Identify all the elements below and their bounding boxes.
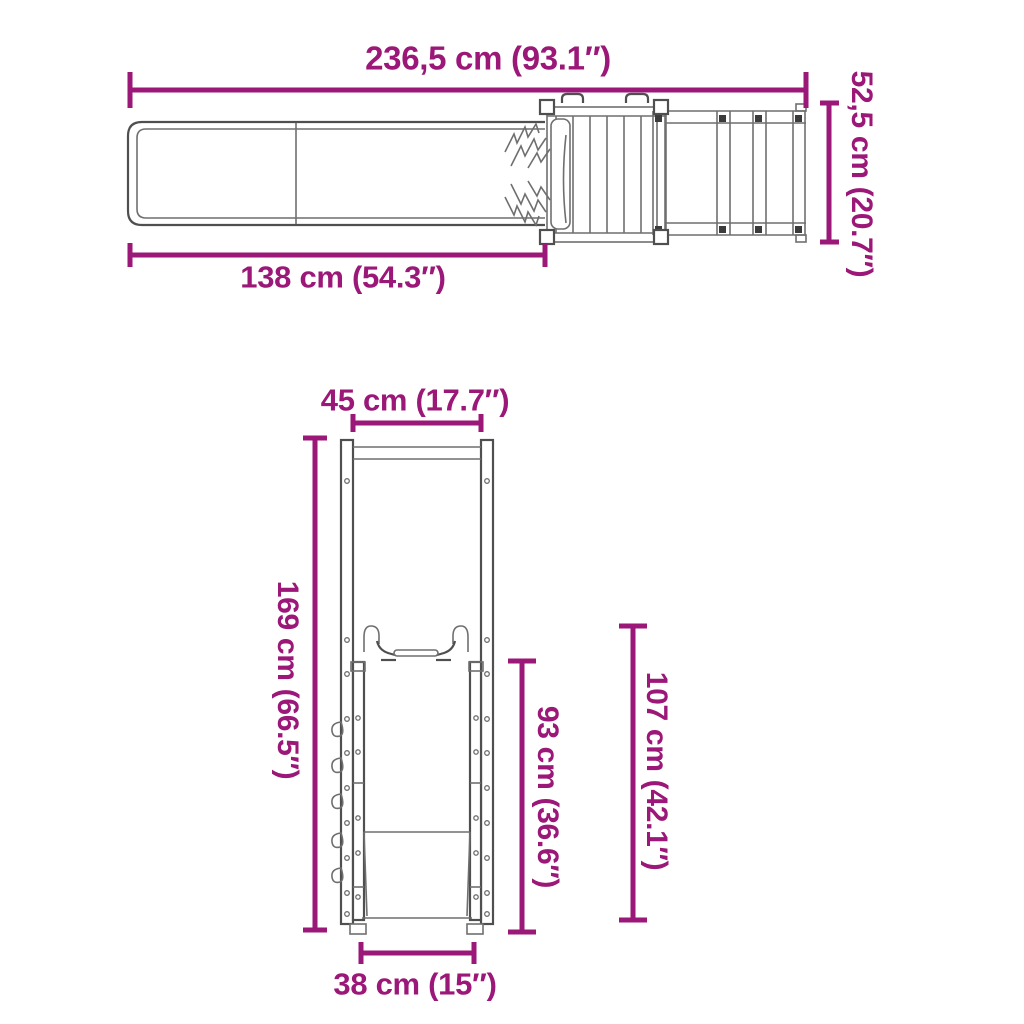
right-post (481, 440, 493, 924)
ladder-top-view (653, 104, 806, 242)
dim-label-slide-height: 93 cm (36.6″) (532, 706, 562, 888)
slide-rail-right (470, 662, 481, 920)
dim-label-frame-height: 107 cm (42.1″) (641, 672, 671, 871)
dim-label-top-width: 45 cm (17.7″) (321, 385, 509, 416)
foot-left (350, 924, 366, 934)
top-view-drawing (128, 94, 806, 244)
slide-rail-left (353, 662, 364, 920)
front-view-drawing (332, 440, 493, 934)
screws (345, 479, 490, 917)
platform-top-view (547, 94, 666, 242)
dim-label-depth: 52,5 cm (20.7″) (846, 71, 876, 278)
dim-label-base-width: 38 cm (15″) (333, 969, 496, 1000)
dim-label-overall-width: 236,5 cm (93.1″) (365, 42, 611, 75)
platform-handle (626, 94, 648, 103)
climbing-rocks-top (505, 124, 550, 225)
dim-label-total-height: 169 cm (66.5″) (272, 581, 302, 780)
playset-dimension-diagram: 236,5 cm (93.1″) 52,5 cm (20.7″) 138 cm … (0, 0, 1024, 1024)
slide-top-view (128, 122, 545, 225)
dim-label-slide-length: 138 cm (54.3″) (240, 262, 445, 293)
slide-bed-front (362, 832, 472, 918)
slide-handles-front (364, 626, 468, 660)
platform-handle (562, 94, 583, 103)
foot-right (467, 924, 483, 934)
left-post (341, 440, 353, 924)
